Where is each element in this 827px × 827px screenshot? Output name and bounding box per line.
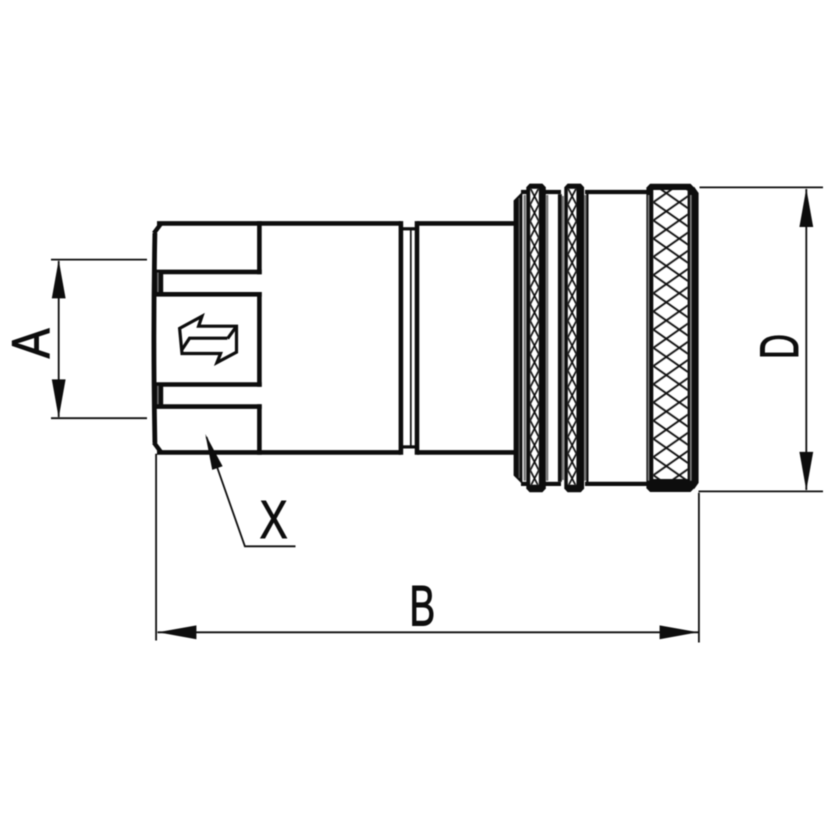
svg-text:X: X bbox=[260, 491, 288, 550]
svg-text:D: D bbox=[748, 334, 810, 359]
svg-text:A: A bbox=[3, 328, 62, 358]
svg-text:B: B bbox=[409, 575, 435, 639]
